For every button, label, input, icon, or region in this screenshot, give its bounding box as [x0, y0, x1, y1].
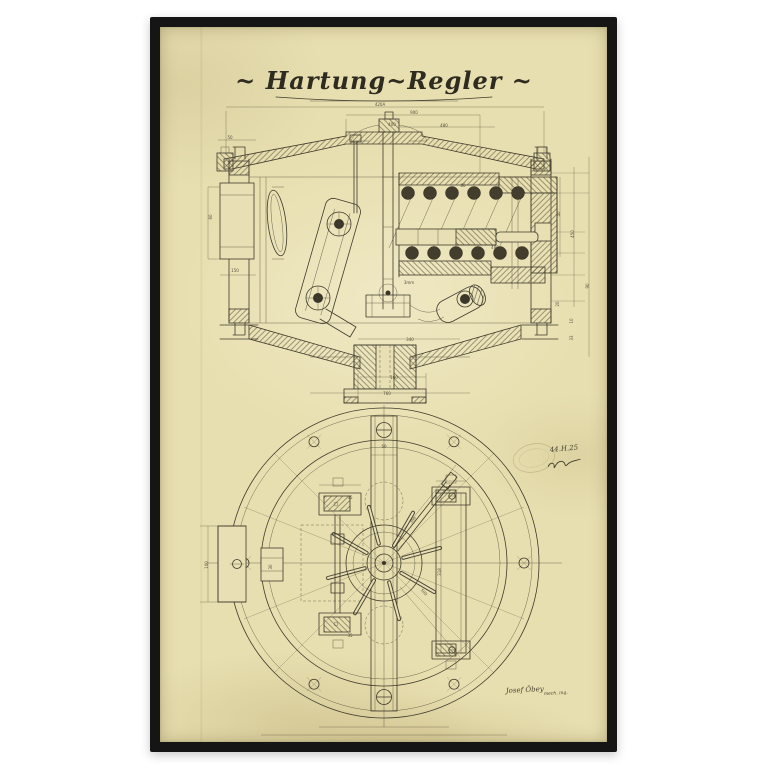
- dimension-label: 30: [268, 564, 273, 570]
- dimension-label: 400: [388, 122, 396, 127]
- dimension-label: 90: [585, 283, 590, 289]
- spindle-collar: [366, 295, 410, 317]
- dimension-label: 50: [381, 444, 387, 449]
- central-spindle: [383, 132, 393, 309]
- drawing-paper: ~ Hartung~Regler ~: [160, 27, 607, 742]
- spring-coil: [402, 187, 415, 200]
- dimension-label: 340: [406, 337, 414, 342]
- dimension-label: 150: [231, 268, 239, 273]
- dimension-label: 33: [569, 335, 574, 341]
- dimension-label: 80: [460, 183, 466, 188]
- dimension-label: 10: [569, 318, 574, 324]
- dimension-label: 480: [440, 123, 448, 128]
- spring-coil: [516, 247, 529, 260]
- weight-link-bar: [335, 515, 340, 613]
- dimension-label: 480: [491, 245, 499, 250]
- dimension-label: 3mm: [404, 280, 414, 285]
- annotations: 44.H.25 Josef Öbey mech. ing.: [504, 440, 581, 697]
- dimension-label: 450: [570, 230, 575, 238]
- dimension-label: 318: [437, 568, 442, 576]
- spring-coil: [472, 247, 485, 260]
- dimension-label: 35: [347, 495, 353, 500]
- picture-frame: ~ Hartung~Regler ~: [150, 17, 617, 752]
- date-annotation: 44.H.25: [548, 444, 578, 455]
- weight-assembly-upper: [319, 478, 361, 515]
- central-hub: [344, 345, 426, 405]
- spring-coil: [446, 187, 459, 200]
- dimension-label: 50: [227, 135, 233, 140]
- dimension-label: 40: [556, 211, 561, 217]
- spring-coil: [428, 247, 441, 260]
- spring-rod: [396, 229, 538, 245]
- governor-top-cover: [224, 132, 544, 169]
- signature-scribble: [548, 459, 581, 469]
- spring-coil: [450, 247, 463, 260]
- product-photo-background: ~ Hartung~Regler ~: [0, 0, 768, 768]
- artist-signature: Josef Öbey: [504, 684, 545, 695]
- technical-drawing: ~ Hartung~Regler ~: [160, 27, 607, 742]
- coil-spring: [389, 187, 529, 260]
- bell-slope-right: [410, 325, 521, 369]
- plan-view: [200, 405, 562, 735]
- page-title: ~ Hartung~Regler ~: [235, 66, 533, 95]
- crank-lever: [394, 472, 457, 551]
- dimension-label: 760: [383, 391, 391, 396]
- dimension-label: 420A: [375, 102, 386, 107]
- title-underline: [276, 97, 492, 101]
- spring-coil: [490, 187, 503, 200]
- spring-coil: [468, 187, 481, 200]
- spring-coil: [424, 187, 437, 200]
- spring-coil: [406, 247, 419, 260]
- dimension-label: 160: [390, 375, 398, 380]
- roller-arm: [418, 282, 489, 326]
- dimension-label: 100: [204, 561, 209, 569]
- bell-slope-left: [249, 325, 360, 369]
- left-weight-box: [220, 183, 254, 259]
- dimension-label: 35: [347, 633, 353, 638]
- spring-coil: [512, 187, 525, 200]
- title-calligraphy: ~ Hartung~Regler ~: [235, 66, 533, 101]
- dimension-label: 60: [208, 214, 213, 220]
- artist-signature-suffix: mech. ing.: [544, 690, 569, 697]
- dimension-label: 20: [555, 301, 560, 307]
- governor-lever: [294, 135, 363, 337]
- weight-assembly-lower: [319, 613, 361, 648]
- dimension-label: 900: [410, 110, 418, 115]
- cross-section-view: [208, 107, 589, 405]
